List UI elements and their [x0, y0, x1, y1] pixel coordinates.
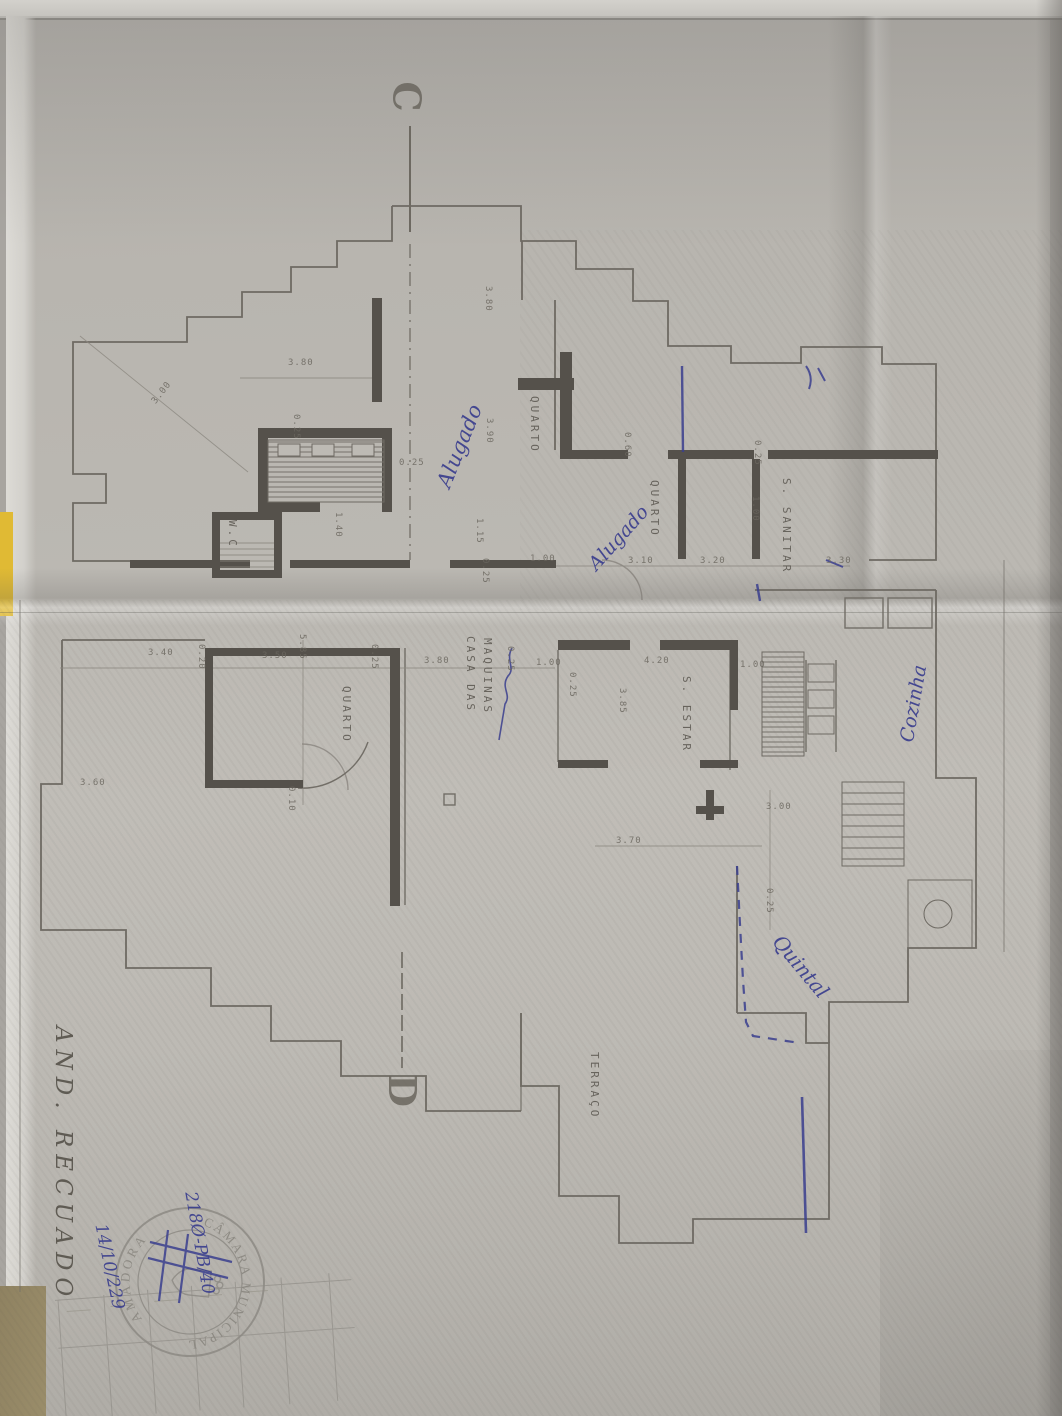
dimension-label: 3.50 — [262, 651, 288, 661]
room-label: QUARTO — [648, 480, 661, 538]
room-label: S. ESTAR — [680, 676, 693, 753]
dimension-label: 3.10 — [628, 556, 654, 566]
dimension-label: 0.25 — [567, 672, 577, 698]
dimension-label: 0.25 — [480, 558, 490, 584]
dimension-label: 3.00 — [150, 380, 174, 406]
room-label: QUARTO — [340, 686, 353, 744]
dimension-label: 3.90 — [484, 418, 494, 444]
dimension-label: 3.00 — [766, 802, 792, 812]
dimension-label: 3.85 — [617, 688, 627, 714]
room-label: W.C — [226, 520, 239, 549]
dimension-label: 0.25 — [399, 458, 425, 468]
plan-title: AND. RECUADO — [50, 1026, 76, 1303]
plan-labels-layer: AND. RECUADO CDQUARTOQUARTOQUARTOW.CS. S… — [0, 0, 1062, 1416]
room-label: CASA DAS — [464, 636, 477, 713]
section-marker-c: C — [385, 81, 430, 111]
handwritten-note: Cozinha — [896, 663, 931, 744]
dimension-label: 3.70 — [616, 836, 642, 846]
room-label: S. SANITAR — [780, 478, 793, 574]
handwritten-note: Quintal — [768, 930, 835, 1003]
dimension-label: 0.25 — [764, 888, 774, 914]
photo-of-floor-plan: CÂMARA MUNICIPAL AMADORA AND. RECUA — [0, 0, 1062, 1416]
dimension-label: 1.00 — [740, 660, 766, 670]
room-label: MAQUINAS — [481, 638, 494, 715]
handwritten-note: 14/10/229 — [90, 1222, 128, 1311]
section-marker-d: D — [380, 1074, 425, 1107]
dimension-label: 1.00 — [536, 658, 562, 668]
dimension-label: 1.15 — [474, 518, 484, 544]
dimension-label: 3.80 — [483, 286, 493, 312]
dimension-label: 5.85 — [297, 634, 307, 660]
dimension-label: 4.20 — [644, 656, 670, 666]
dimension-label: 1.40 — [333, 512, 343, 538]
dimension-label: 3.80 — [288, 358, 314, 368]
dimension-label: 3.40 — [148, 648, 174, 658]
handwritten-note: 218Ø-PB/40 — [180, 1190, 218, 1296]
dimension-label: 3.60 — [80, 778, 106, 788]
dimension-label: 0.25 — [291, 414, 301, 440]
dimension-label: 3.20 — [700, 556, 726, 566]
dimension-label: 0.25 — [369, 644, 379, 670]
dimension-label: 0.60 — [622, 432, 632, 458]
dimension-label: 1.00 — [530, 554, 556, 564]
dimension-label: 3.80 — [424, 656, 450, 666]
dimension-label: 0.20 — [196, 644, 206, 670]
room-label: TERRAÇO — [588, 1052, 601, 1119]
dimension-label: 0.25 — [505, 646, 515, 672]
dimension-label: 0.25 — [752, 440, 762, 466]
dimension-label: 0.10 — [286, 786, 296, 812]
handwritten-note: Alugado — [432, 401, 487, 491]
dimension-label: 3.30 — [826, 556, 852, 566]
dimension-label: 1.00 — [750, 496, 760, 522]
room-label: QUARTO — [528, 396, 541, 454]
